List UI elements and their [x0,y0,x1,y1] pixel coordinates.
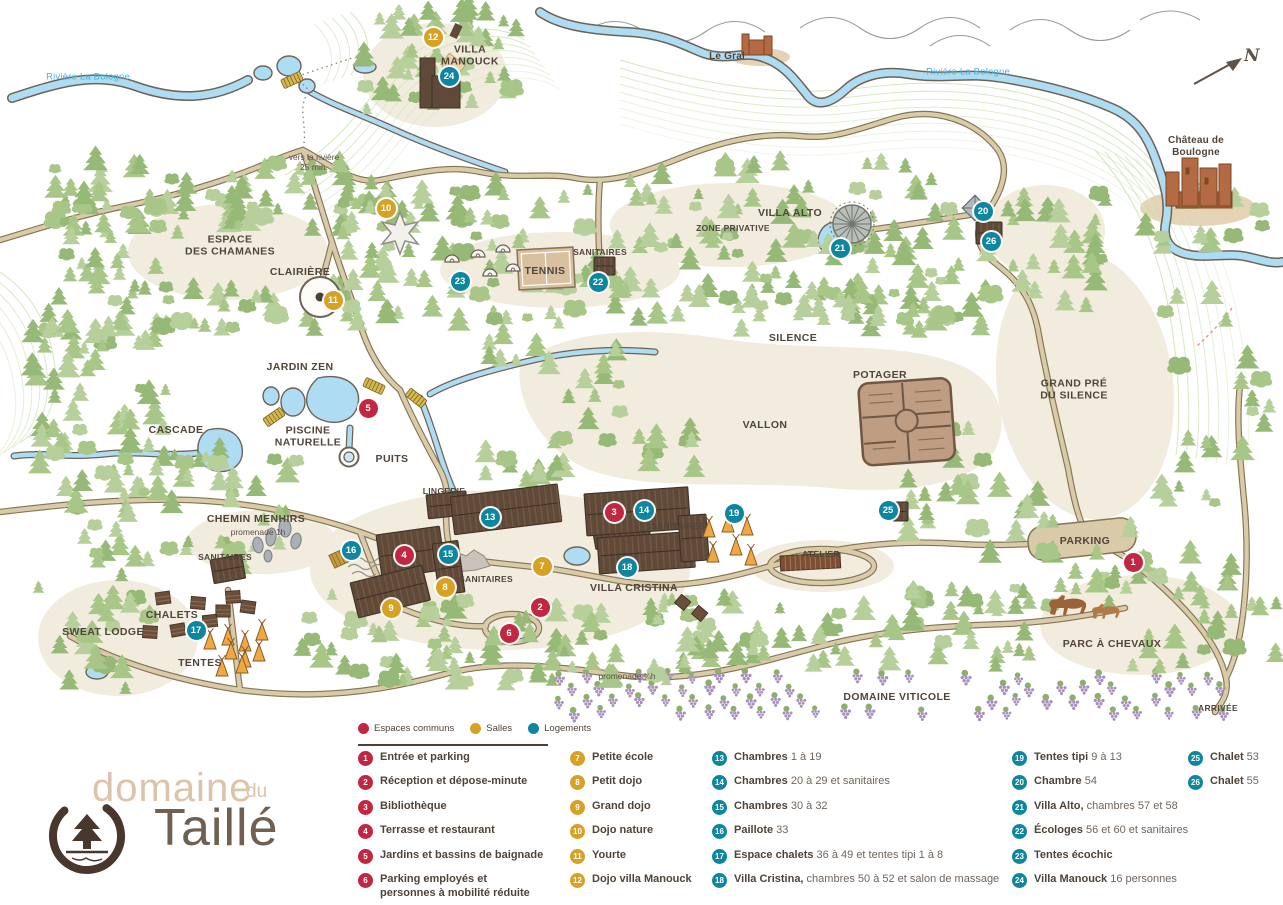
map-marker-4[interactable]: 4 [395,546,414,565]
compass-n-label: N [1244,46,1260,66]
domain-map-page: Rivière La BologneRivière La BologneVILL… [0,0,1283,905]
map-marker-9[interactable]: 9 [382,599,401,618]
map-marker-6[interactable]: 6 [500,624,519,643]
map-marker-12[interactable]: 12 [424,28,443,47]
map-marker-17[interactable]: 17 [187,621,206,640]
map-marker-24[interactable]: 24 [440,67,459,86]
map-marker-13[interactable]: 13 [481,508,500,527]
map-marker-19[interactable]: 19 [725,504,744,523]
map-marker-21[interactable]: 21 [831,239,850,258]
logo: domaine du Taillé [26,768,306,888]
map-marker-11[interactable]: 11 [324,291,343,310]
map-marker-16[interactable]: 16 [342,541,361,560]
map-marker-2[interactable]: 2 [531,598,550,617]
logo-word-taille: Taillé [154,798,279,858]
map-marker-22[interactable]: 22 [589,273,608,292]
map-marker-25[interactable]: 25 [879,501,898,520]
map-marker-14[interactable]: 14 [635,501,654,520]
map-marker-3[interactable]: 3 [605,503,624,522]
map-marker-26[interactable]: 26 [982,232,1001,251]
map-marker-5[interactable]: 5 [359,399,378,418]
map-marker-10[interactable]: 10 [377,199,396,218]
map-marker-15[interactable]: 15 [439,545,458,564]
map-marker-23[interactable]: 23 [451,272,470,291]
map-marker-7[interactable]: 7 [533,557,552,576]
map-marker-1[interactable]: 1 [1124,553,1143,572]
compass: N [1192,46,1266,92]
map-marker-8[interactable]: 8 [436,578,455,597]
map-marker-20[interactable]: 20 [974,202,993,221]
map-marker-18[interactable]: 18 [618,558,637,577]
